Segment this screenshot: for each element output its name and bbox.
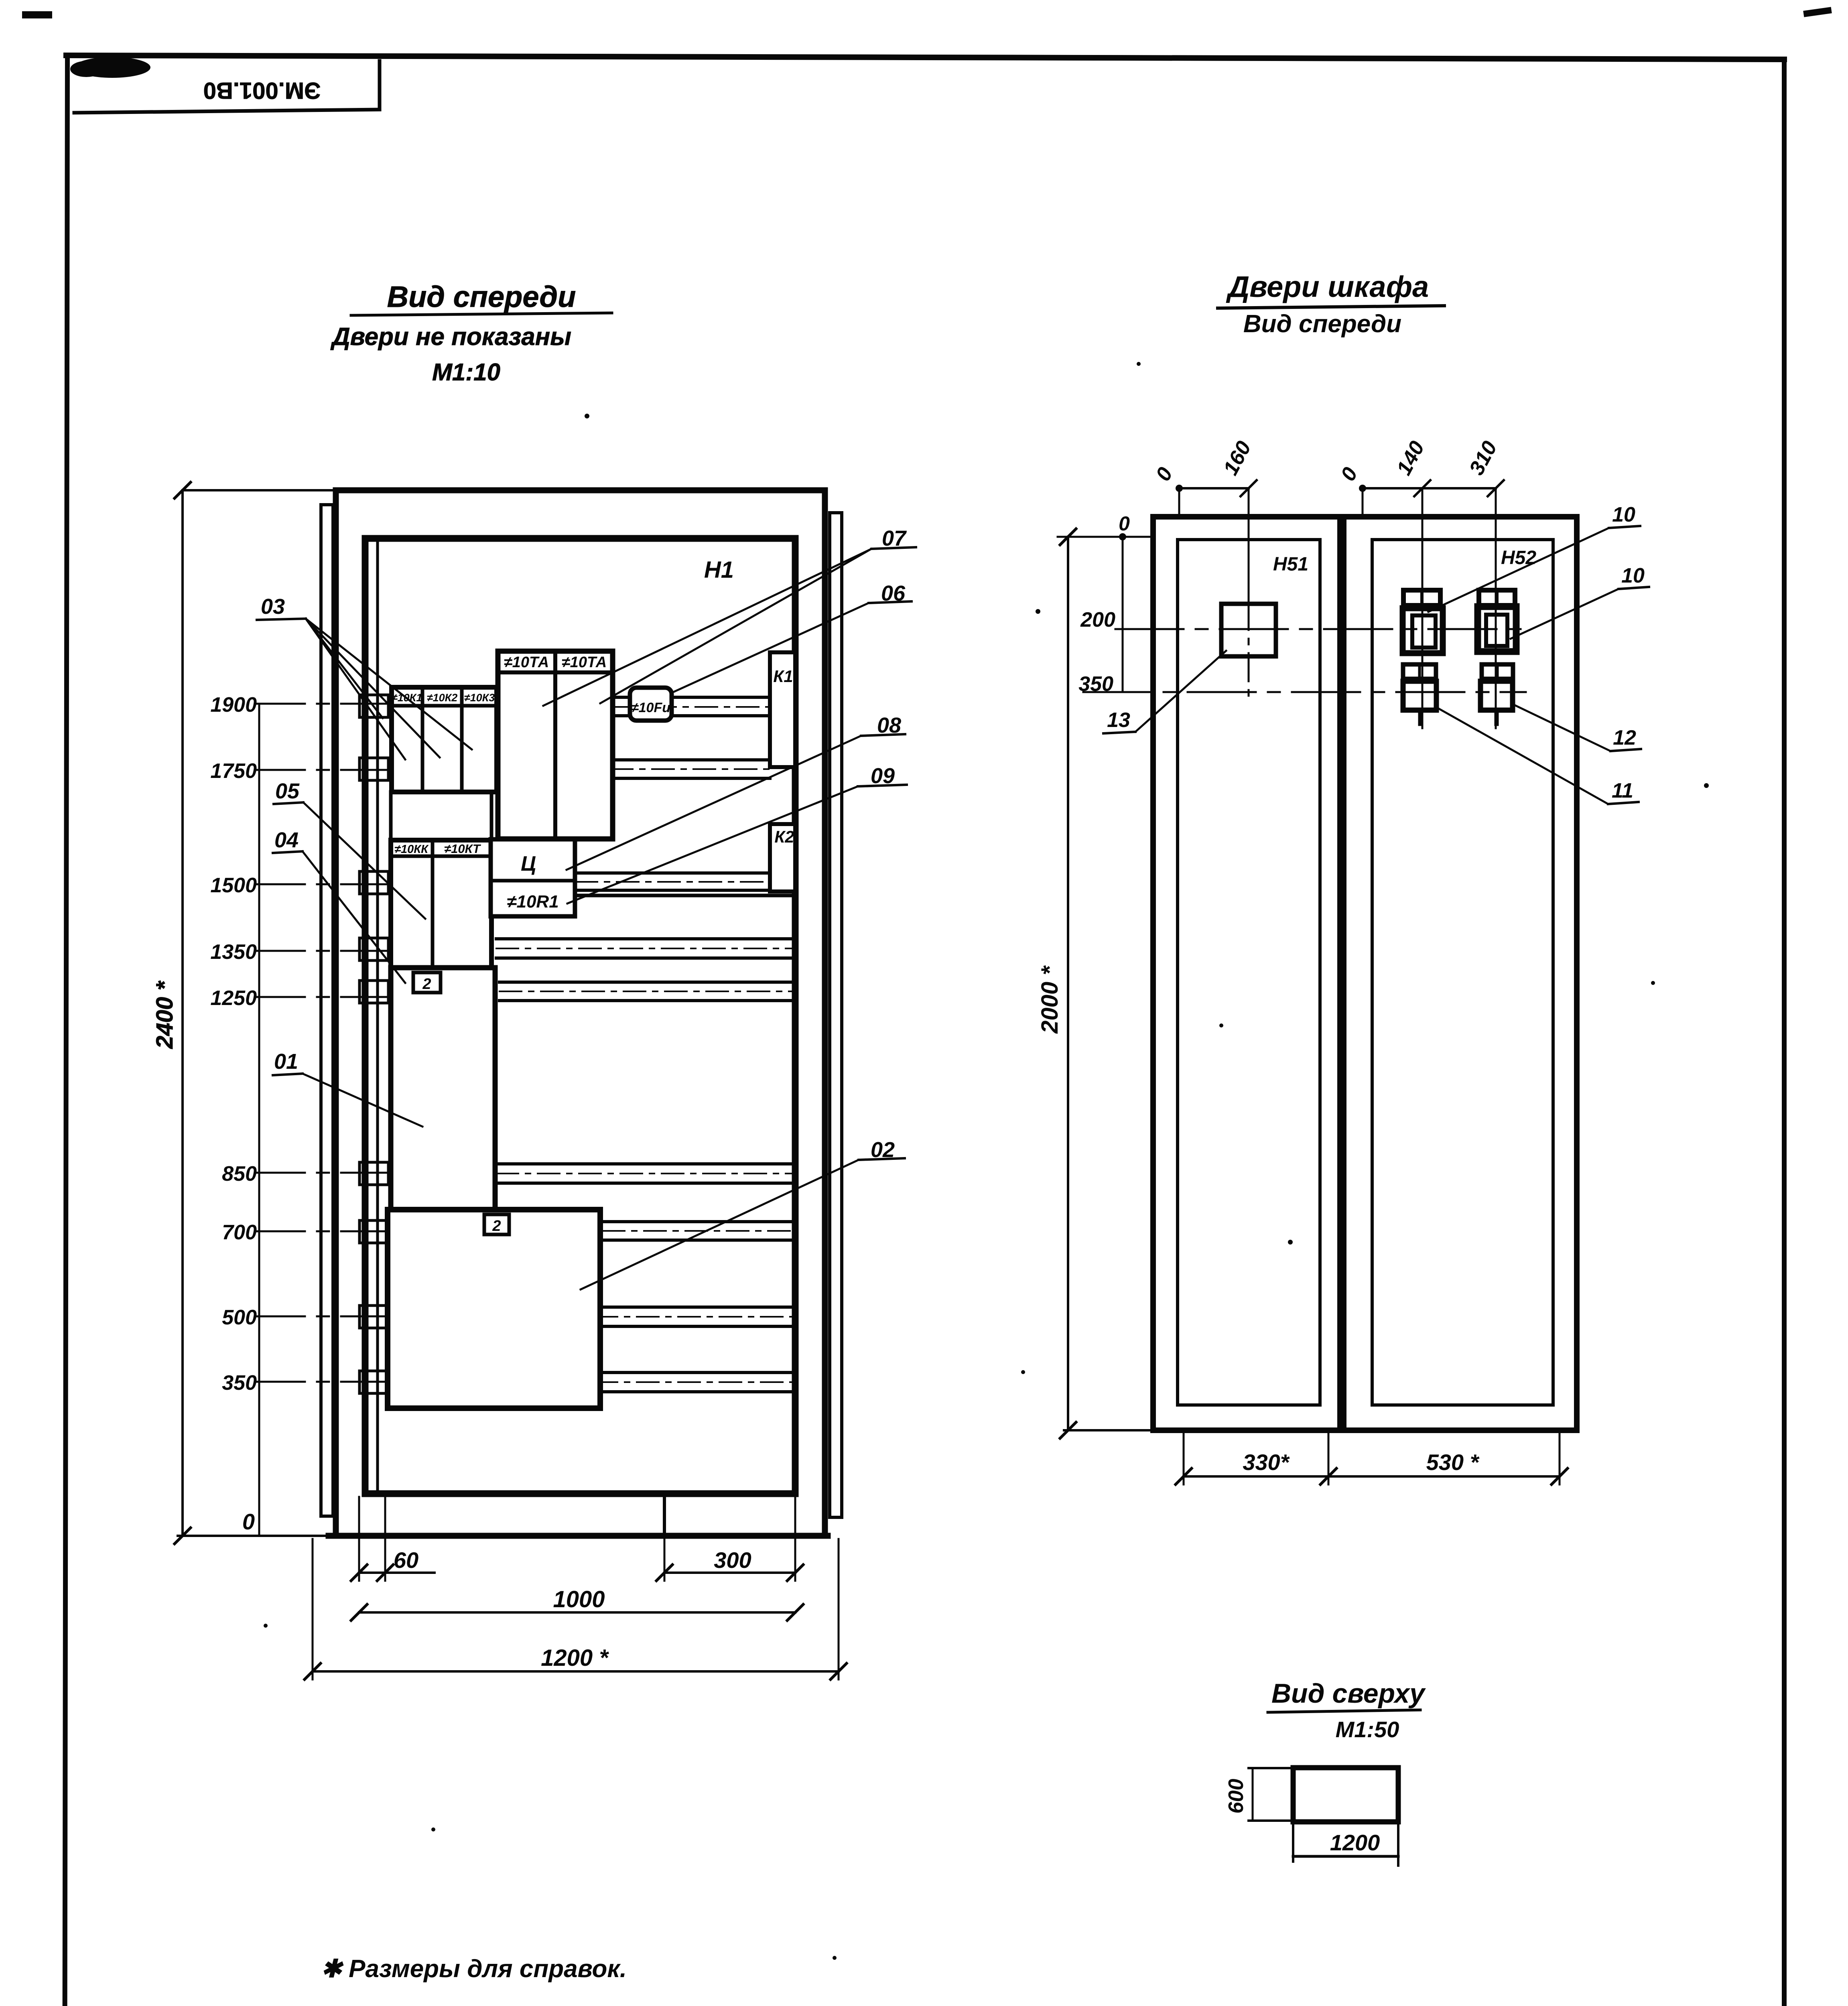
svg-text:К2: К2	[774, 827, 794, 846]
svg-text:1900: 1900	[210, 693, 257, 717]
svg-text:1500: 1500	[210, 874, 257, 897]
svg-text:М1:10: М1:10	[432, 359, 500, 386]
svg-text:2: 2	[422, 976, 431, 993]
svg-text:≠10КТ: ≠10КТ	[444, 842, 481, 856]
svg-text:1750: 1750	[210, 759, 257, 783]
svg-text:01: 01	[274, 1050, 298, 1074]
svg-text:700: 700	[222, 1221, 257, 1244]
svg-text:0: 0	[242, 1509, 255, 1534]
svg-text:11: 11	[1612, 779, 1633, 802]
svg-text:1250: 1250	[210, 987, 257, 1010]
svg-text:≠10К3: ≠10К3	[464, 692, 495, 704]
svg-text:300: 300	[714, 1547, 751, 1573]
svg-text:Вид спереди: Вид спереди	[387, 280, 576, 313]
svg-text:Двери не показаны: Двери не показаны	[330, 323, 571, 351]
svg-text:≠10ТА: ≠10ТА	[562, 654, 607, 671]
svg-text:0: 0	[1119, 512, 1130, 535]
svg-text:ЭМ.001.В0: ЭМ.001.В0	[203, 77, 321, 104]
svg-text:Н51: Н51	[1273, 554, 1308, 575]
svg-text:2000 *: 2000 *	[1037, 965, 1063, 1034]
svg-text:10: 10	[1612, 503, 1635, 526]
svg-text:330*: 330*	[1243, 1450, 1290, 1475]
svg-text:2: 2	[492, 1218, 501, 1234]
svg-text:≠10Fu: ≠10Fu	[631, 700, 670, 715]
svg-text:Вид спереди: Вид спереди	[1243, 310, 1401, 338]
svg-text:М1:50: М1:50	[1336, 1717, 1399, 1742]
svg-text:600: 600	[1225, 1779, 1248, 1814]
svg-text:1350: 1350	[210, 940, 257, 964]
svg-text:Н1: Н1	[704, 557, 734, 583]
svg-text:✱ Размеры для справок.: ✱ Размеры для справок.	[321, 1955, 627, 1983]
svg-text:350: 350	[1078, 672, 1113, 696]
svg-text:10: 10	[1621, 564, 1645, 587]
svg-text:1200: 1200	[1330, 1830, 1380, 1855]
svg-text:310: 310	[1465, 437, 1502, 479]
svg-text:1200 *: 1200 *	[541, 1645, 609, 1671]
svg-text:13: 13	[1107, 709, 1130, 732]
svg-text:0: 0	[1336, 464, 1363, 485]
svg-text:160: 160	[1219, 437, 1256, 479]
svg-text:05: 05	[275, 779, 300, 803]
svg-text:≠10КК: ≠10КК	[394, 843, 429, 856]
svg-text:03: 03	[261, 595, 285, 619]
svg-text:350: 350	[222, 1371, 257, 1395]
svg-text:2400 *: 2400 *	[152, 981, 178, 1049]
svg-text:500: 500	[222, 1306, 257, 1329]
svg-text:0: 0	[1151, 464, 1178, 485]
svg-text:140: 140	[1392, 437, 1429, 479]
svg-text:Ц: Ц	[521, 852, 536, 875]
svg-text:04: 04	[274, 828, 299, 852]
svg-text:1000: 1000	[553, 1586, 605, 1612]
svg-text:Вид сверху: Вид сверху	[1271, 1678, 1426, 1709]
svg-text:Н52: Н52	[1501, 547, 1536, 569]
svg-text:200: 200	[1080, 608, 1115, 631]
svg-text:530 *: 530 *	[1426, 1450, 1480, 1475]
svg-text:К1: К1	[773, 667, 793, 686]
svg-text:60: 60	[394, 1547, 418, 1573]
svg-text:Двери шкафа: Двери шкафа	[1226, 270, 1429, 303]
svg-text:≠10К2: ≠10К2	[427, 692, 457, 704]
svg-text:≠10R1: ≠10R1	[507, 892, 558, 912]
svg-text:12: 12	[1613, 726, 1636, 749]
svg-text:850: 850	[222, 1162, 257, 1186]
svg-text:≠10ТА: ≠10ТА	[504, 654, 549, 671]
